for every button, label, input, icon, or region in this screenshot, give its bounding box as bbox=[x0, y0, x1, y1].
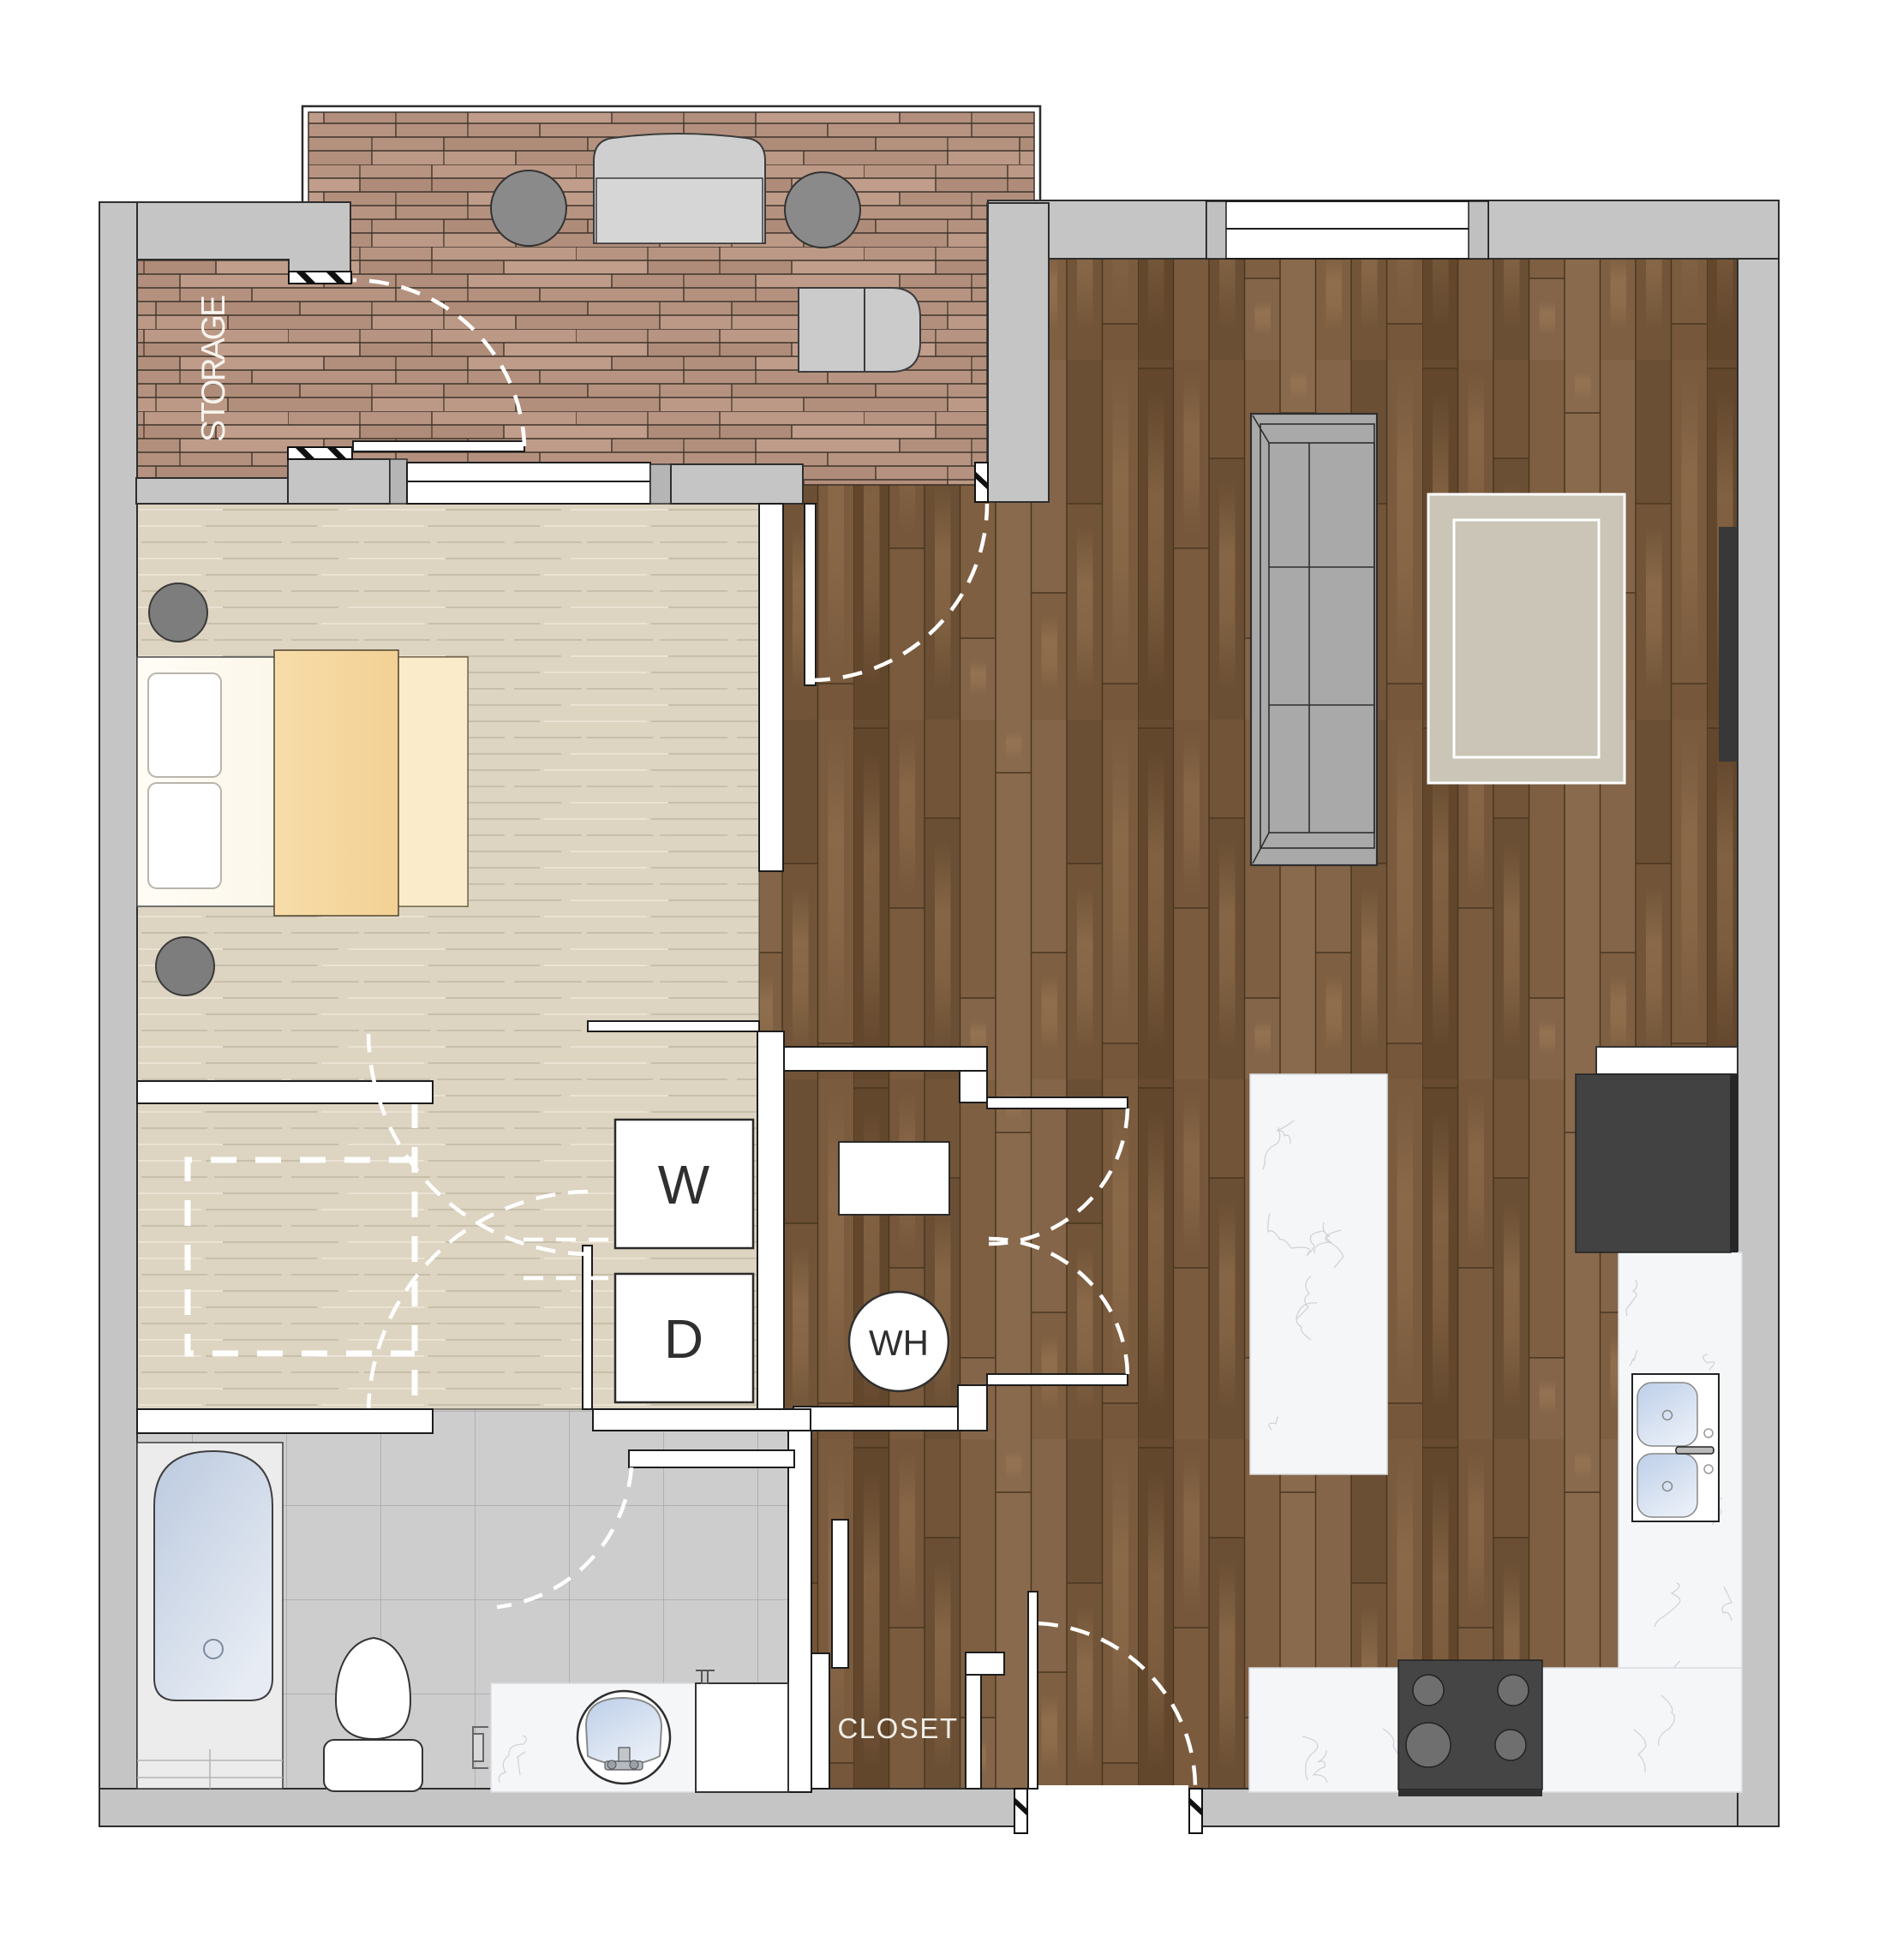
svg-text:WH: WH bbox=[869, 1323, 929, 1363]
svg-text:W: W bbox=[658, 1154, 710, 1216]
svg-text:STORAGE: STORAGE bbox=[195, 296, 232, 442]
svg-text:CLOSET: CLOSET bbox=[837, 1712, 958, 1744]
svg-text:D: D bbox=[664, 1308, 703, 1370]
